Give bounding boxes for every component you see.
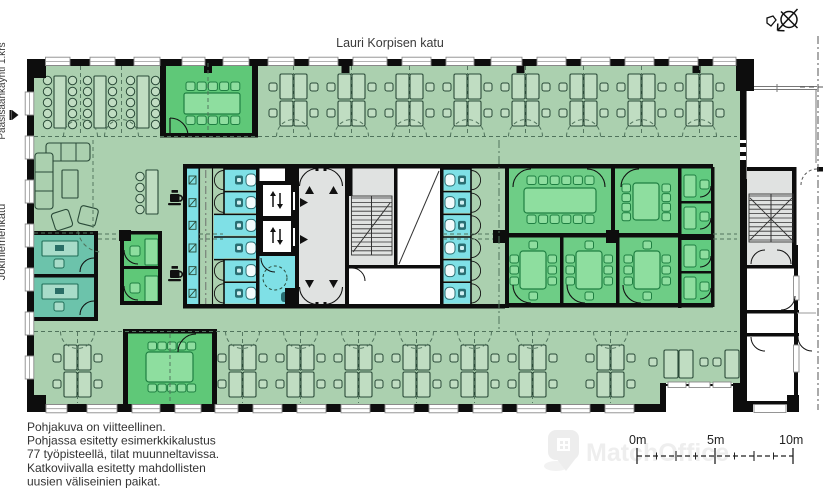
svg-text:Lauri Korpisen katu: Lauri Korpisen katu: [336, 36, 444, 50]
svg-text:Katkoviivalla esitetty mahdoll: Katkoviivalla esitetty mahdollisten: [27, 461, 206, 475]
svg-text:0m: 0m: [629, 433, 646, 447]
svg-text:77 työpisteellä, tilat muunnel: 77 työpisteellä, tilat muunneltavissa.: [27, 447, 219, 461]
svg-text:uusien väliseinien paikat.: uusien väliseinien paikat.: [27, 474, 160, 488]
svg-text:5m: 5m: [707, 433, 724, 447]
svg-text:Pohjakuva on viitteellinen.: Pohjakuva on viitteellinen.: [27, 420, 166, 434]
svg-text:10m: 10m: [779, 433, 803, 447]
svg-text:Pääsisäänkäynti 1.krs: Pääsisäänkäynti 1.krs: [0, 42, 8, 139]
svg-text:Pohjassa esitetty esimerkkikal: Pohjassa esitetty esimerkkikalustus: [27, 434, 216, 448]
svg-text:Jokiniemenkatu: Jokiniemenkatu: [0, 204, 8, 280]
